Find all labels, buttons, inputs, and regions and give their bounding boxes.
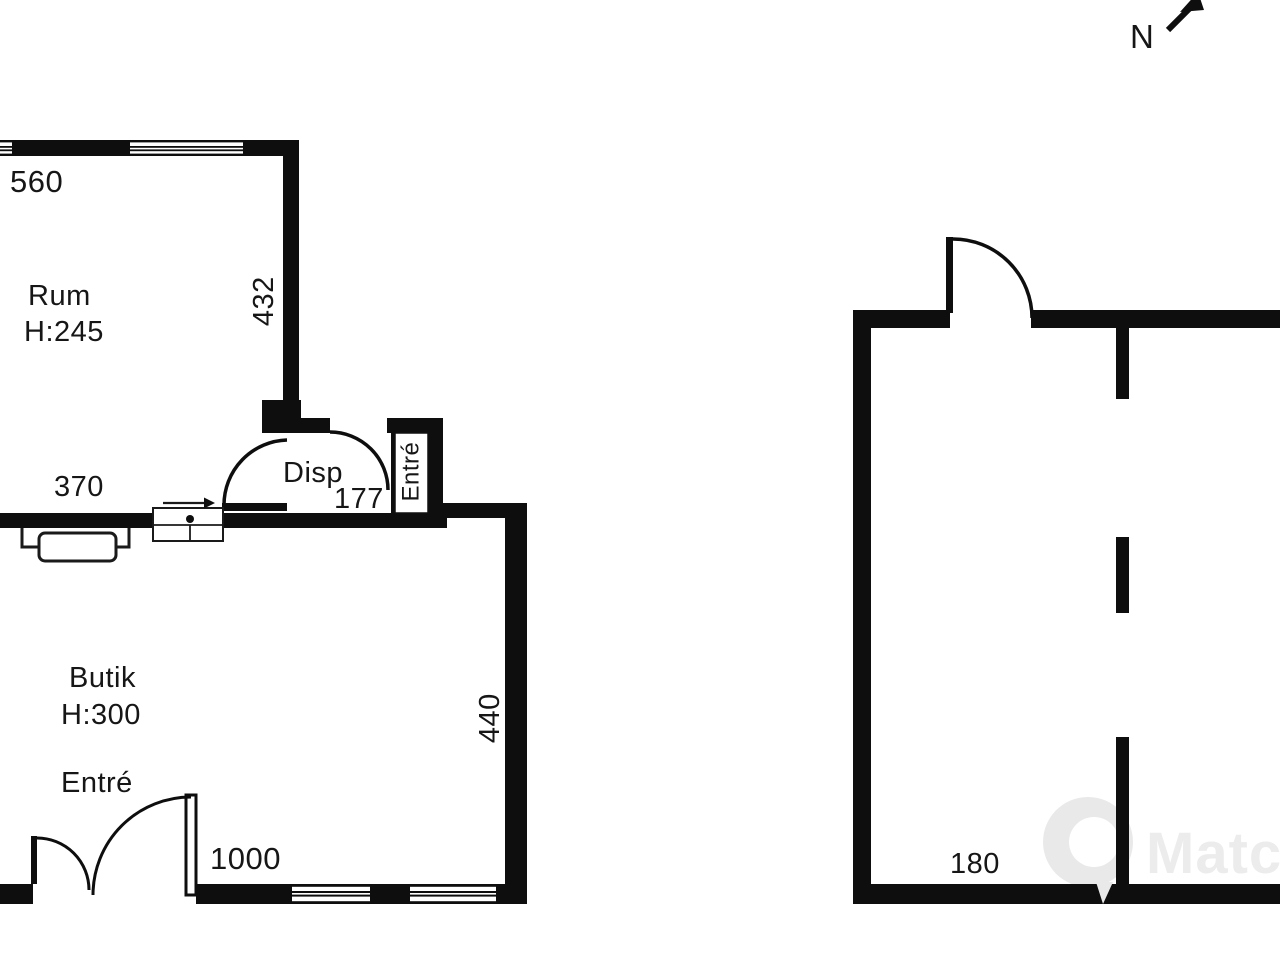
room-label-rum: Rum	[28, 281, 91, 311]
compass-north-arrow-icon	[1168, 0, 1204, 30]
bottom-wall	[853, 884, 1280, 904]
partition-wall	[1116, 328, 1129, 399]
butik-bottom-wall	[0, 884, 527, 904]
dimension-label-disp: 177	[334, 484, 384, 514]
butik-right-wall	[505, 503, 527, 904]
entrance-label-vestibule: Entré	[398, 427, 423, 517]
top-wall	[1031, 310, 1280, 328]
interior-wall	[443, 503, 508, 518]
floor-plan-page: Match	[0, 0, 1280, 960]
wall-post	[262, 400, 301, 433]
room-label-butik: Butik	[69, 663, 136, 693]
door-arc	[946, 237, 1032, 318]
compass-north-label: N	[1130, 18, 1154, 56]
counter-symbol	[22, 528, 129, 561]
partition-wall	[1116, 737, 1129, 886]
rum-top-wall	[0, 140, 298, 156]
left-wall	[853, 310, 871, 904]
dimension-label-rum-width: 560	[10, 166, 63, 199]
dimension-label-rum-depth: 432	[249, 251, 279, 351]
dimension-label-butik-depth: 440	[475, 668, 505, 768]
dimension-label-interior-wall: 370	[54, 472, 104, 502]
room-height-butik: H:300	[61, 700, 141, 730]
floor-plan-svg	[0, 0, 1280, 960]
room-height-rum: H:245	[24, 317, 104, 347]
dimension-label-butik-width: 1000	[210, 843, 281, 876]
wall-stub	[299, 418, 330, 433]
rum-right-wall	[283, 140, 299, 402]
dimension-label-right-building: 180	[950, 849, 1000, 879]
window	[130, 140, 243, 156]
stair-symbol	[153, 498, 223, 542]
window	[292, 884, 370, 904]
door-arc	[224, 440, 287, 505]
entrance-label-shop-door: Entré	[61, 768, 133, 798]
door-leaf	[222, 503, 287, 511]
partition-wall	[1116, 537, 1129, 613]
window	[0, 140, 12, 156]
double-door	[31, 795, 196, 895]
window	[410, 884, 496, 904]
